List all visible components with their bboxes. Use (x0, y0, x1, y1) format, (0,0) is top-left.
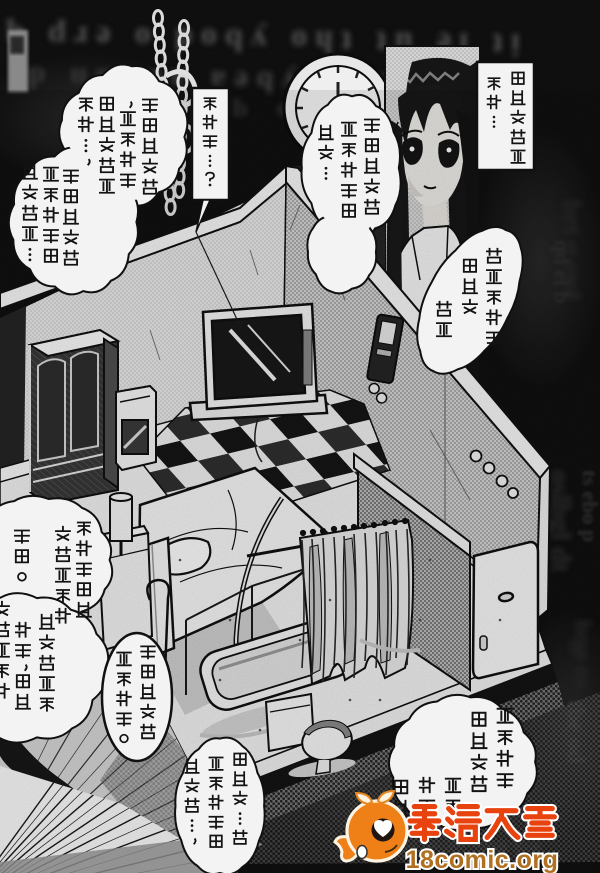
svg-text:18comic.org: 18comic.org (406, 846, 559, 873)
